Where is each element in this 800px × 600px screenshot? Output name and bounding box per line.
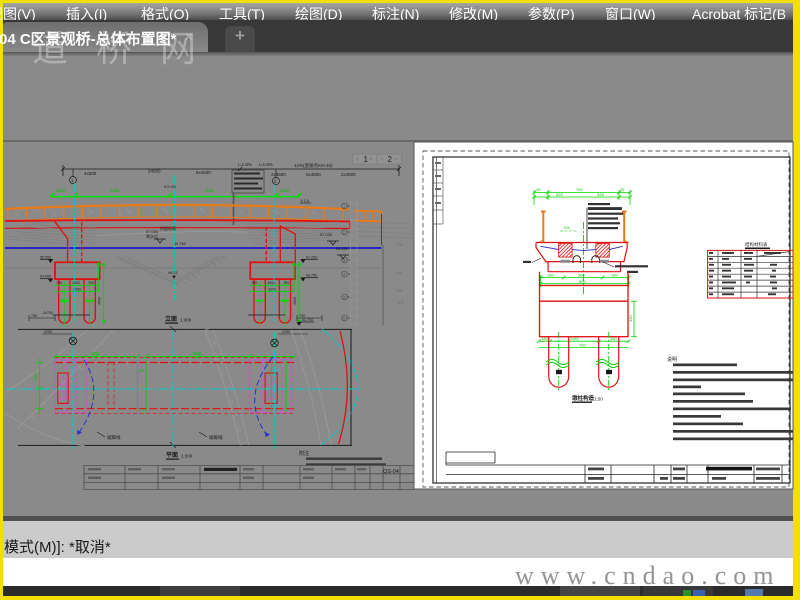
svg-text:常水位: 常水位: [146, 233, 158, 239]
svg-text:1500: 1500: [72, 281, 80, 285]
svg-text:5x4500: 5x4500: [196, 170, 211, 175]
svg-text:1: 1: [343, 204, 346, 209]
svg-text:52.750: 52.750: [302, 318, 313, 322]
svg-text:3000: 3000: [268, 287, 276, 291]
svg-text:说明: 说明: [667, 356, 677, 363]
svg-text:附注: 附注: [299, 450, 309, 457]
svg-text:2: 2: [274, 179, 277, 184]
svg-text:2500: 2500: [205, 188, 215, 193]
svg-text:4: 4: [343, 272, 346, 277]
svg-text:平面: 平面: [166, 451, 178, 459]
svg-text:325: 325: [597, 192, 604, 197]
svg-text:4500: 4500: [98, 297, 102, 305]
svg-text:150: 150: [547, 273, 554, 278]
svg-text:2500: 2500: [110, 188, 120, 193]
svg-text:桥面标高: 桥面标高: [160, 225, 176, 231]
svg-text:1: 1: [71, 178, 74, 183]
svg-text:坡脚线: 坡脚线: [209, 434, 223, 441]
svg-text:5.5: 5.5: [397, 288, 403, 293]
svg-text:25: 25: [536, 187, 541, 192]
svg-text:700: 700: [579, 343, 586, 348]
svg-text:54.000: 54.000: [40, 275, 51, 279]
svg-text:-2x750: -2x750: [42, 311, 53, 315]
svg-text:24000: 24000: [148, 169, 161, 174]
svg-text:QS-04: QS-04: [383, 469, 399, 475]
svg-text:1:300: 1:300: [180, 318, 192, 323]
svg-text:750: 750: [283, 281, 289, 285]
svg-text:-65: -65: [396, 270, 403, 275]
svg-text:1500: 1500: [192, 351, 202, 356]
svg-text:48.23: 48.23: [168, 271, 178, 275]
svg-text:750: 750: [299, 314, 305, 318]
svg-text:结构材料表: 结构材料表: [745, 241, 768, 248]
svg-text:6.3: 6.3: [398, 300, 404, 305]
svg-text:2250: 2250: [44, 330, 52, 334]
svg-text:55.500: 55.500: [336, 246, 349, 251]
svg-text:墩柱构造: 墩柱构造: [572, 394, 595, 402]
svg-text:150: 150: [610, 336, 617, 341]
svg-text:750: 750: [56, 281, 62, 285]
svg-text:5: 5: [343, 295, 346, 300]
svg-text:700: 700: [576, 187, 583, 192]
svg-text:57.000: 57.000: [320, 232, 333, 237]
svg-text:i=1.5%: i=1.5%: [259, 162, 273, 167]
svg-text:K0+45: K0+45: [164, 184, 176, 189]
svg-text:4500: 4500: [293, 297, 297, 305]
svg-text:57.250: 57.250: [306, 255, 317, 259]
svg-text:坡脚线: 坡脚线: [107, 434, 121, 441]
svg-text:1500: 1500: [56, 188, 66, 193]
svg-text:2x50: 2x50: [570, 336, 579, 341]
svg-text:6: 6: [343, 316, 346, 321]
svg-text:500: 500: [579, 279, 586, 284]
svg-text:325: 325: [556, 192, 563, 197]
svg-text:1:300: 1:300: [181, 454, 193, 459]
svg-text:750: 750: [88, 281, 94, 285]
svg-text:350: 350: [628, 315, 633, 322]
svg-text:1:1.5: 1:1.5: [300, 198, 310, 203]
svg-text:150: 150: [611, 273, 618, 278]
svg-text:350: 350: [33, 373, 38, 380]
svg-text:150: 150: [541, 336, 548, 341]
svg-text:2%: 2%: [564, 225, 570, 230]
svg-text:750: 750: [31, 314, 37, 318]
svg-text:i=1.5%: i=1.5%: [238, 162, 252, 167]
svg-text:4x500: 4x500: [84, 171, 97, 176]
svg-text:12%(变坡点K0+45): 12%(变坡点K0+45): [294, 162, 333, 169]
svg-text:2x4500: 2x4500: [271, 172, 286, 177]
svg-text:2250: 2250: [282, 330, 290, 334]
svg-text:5x4500: 5x4500: [306, 172, 321, 177]
svg-text:2: 2: [388, 155, 393, 164]
svg-text:1:50: 1:50: [594, 397, 603, 402]
svg-text:2x4500: 2x4500: [341, 172, 356, 177]
svg-text:立面: 立面: [165, 315, 177, 323]
svg-text:1500: 1500: [90, 351, 100, 356]
svg-text:49.748: 49.748: [174, 242, 186, 246]
svg-text:1: 1: [364, 155, 369, 164]
svg-text:55.500: 55.500: [40, 255, 51, 259]
svg-text:700: 700: [396, 242, 403, 247]
svg-text:1500: 1500: [280, 188, 290, 193]
svg-text:50: 50: [139, 368, 144, 373]
svg-text:2: 2: [343, 230, 346, 235]
svg-text:300: 300: [578, 273, 585, 278]
svg-text:25: 25: [620, 187, 625, 192]
svg-text:3: 3: [343, 258, 346, 263]
svg-text:750: 750: [251, 281, 257, 285]
svg-text:56.750: 56.750: [306, 274, 317, 278]
